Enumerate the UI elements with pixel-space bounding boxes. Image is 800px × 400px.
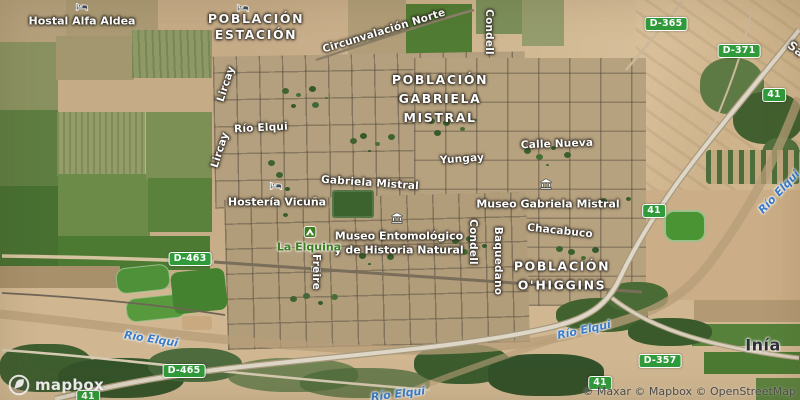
poi-label-line: y de Historia Natural [334,244,463,258]
campground-icon [304,226,317,238]
place-label-line: GABRIELA [392,90,488,109]
place-label-poblacion-ohiggins: POBLACIÓN O'HIGGINS [514,257,610,295]
poi-label-hosteria-vicuna: Hostería Vicuña [228,196,326,209]
route-shield-d465: D-465 [163,364,206,378]
poi-label-museo-entomologico: Museo Entomológico y de Historia Natural [334,230,463,259]
poi-label-line: Museo Entomológico [334,230,463,244]
route-shield-41-e: 41 [642,204,666,218]
poi-label-museo-gabriela-mistral: Museo Gabriela Mistral [476,198,619,211]
poi-label-hostal-alfa-aldea: Hostal Alfa Aldea [29,15,136,28]
stadium-field [664,210,706,242]
route-shield-41-ne: 41 [762,88,786,102]
terrain-patch [0,186,58,268]
terrain-patch [0,110,58,188]
terrain-patch [148,178,212,232]
route-shield-d365: D-365 [645,17,688,31]
tree-cluster [282,88,289,94]
plaza [332,190,374,218]
mapbox-logo-text: mapbox [35,376,104,394]
terrain-patch [56,36,134,80]
place-label-line: MISTRAL [392,108,488,127]
mapbox-logo-icon [8,374,30,396]
tree-cluster [268,160,275,166]
terrain-patch [146,112,212,180]
satellite-map[interactable]: POBLACIÓN ESTACIÓN POBLACIÓN GABRIELA MI… [0,0,800,400]
place-label-poblacion-estacion: POBLACIÓN ESTACIÓN [208,11,304,44]
place-label-line: POBLACIÓN [208,11,304,27]
street-label-condell-mid: Condell [467,219,479,265]
museum-icon [540,178,552,190]
sports-field [170,267,228,314]
lodging-icon [76,1,89,14]
sports-court [182,316,212,330]
tree-cluster [350,138,357,144]
street-label-condell-north: Condell [483,9,495,55]
museum-icon [391,212,403,224]
street-label-freire: Freire [310,254,322,290]
place-label-poblacion-gabriela-mistral: POBLACIÓN GABRIELA MISTRAL [392,71,488,127]
tree-cluster [556,246,563,252]
terrain-patch [704,352,800,374]
lodging-icon [270,180,283,193]
route-shield-d371: D-371 [718,44,761,58]
terrain-patch [132,30,212,78]
place-label-line: POBLACIÓN [514,257,610,276]
place-label-line: POBLACIÓN [392,71,488,90]
river-vegetation [606,282,668,312]
city-grid-south [224,192,530,350]
terrain-patch [522,0,564,46]
mapbox-logo[interactable]: mapbox [8,374,104,396]
place-label-line: O'HIGGINS [514,276,610,295]
terrain-patch [0,42,58,112]
street-label-baquedano: Baquedano [492,227,504,295]
street-label-calle-nueva: Calle Nueva [521,137,594,152]
terrain-patch [58,174,150,236]
terrain-patch [694,300,800,322]
river-vegetation [628,318,712,346]
route-shield-d357: D-357 [639,354,682,368]
route-shield-d463: D-463 [169,252,212,266]
place-label-inia: Inía [745,336,781,355]
map-attribution[interactable]: © Maxar © Mapbox © OpenStreetMap [582,385,796,398]
poi-label-la-elquina: La Elquina [277,241,341,254]
tree-cluster [290,296,297,302]
terrain-patch [57,112,145,176]
place-label-line: ESTACIÓN [208,27,304,43]
